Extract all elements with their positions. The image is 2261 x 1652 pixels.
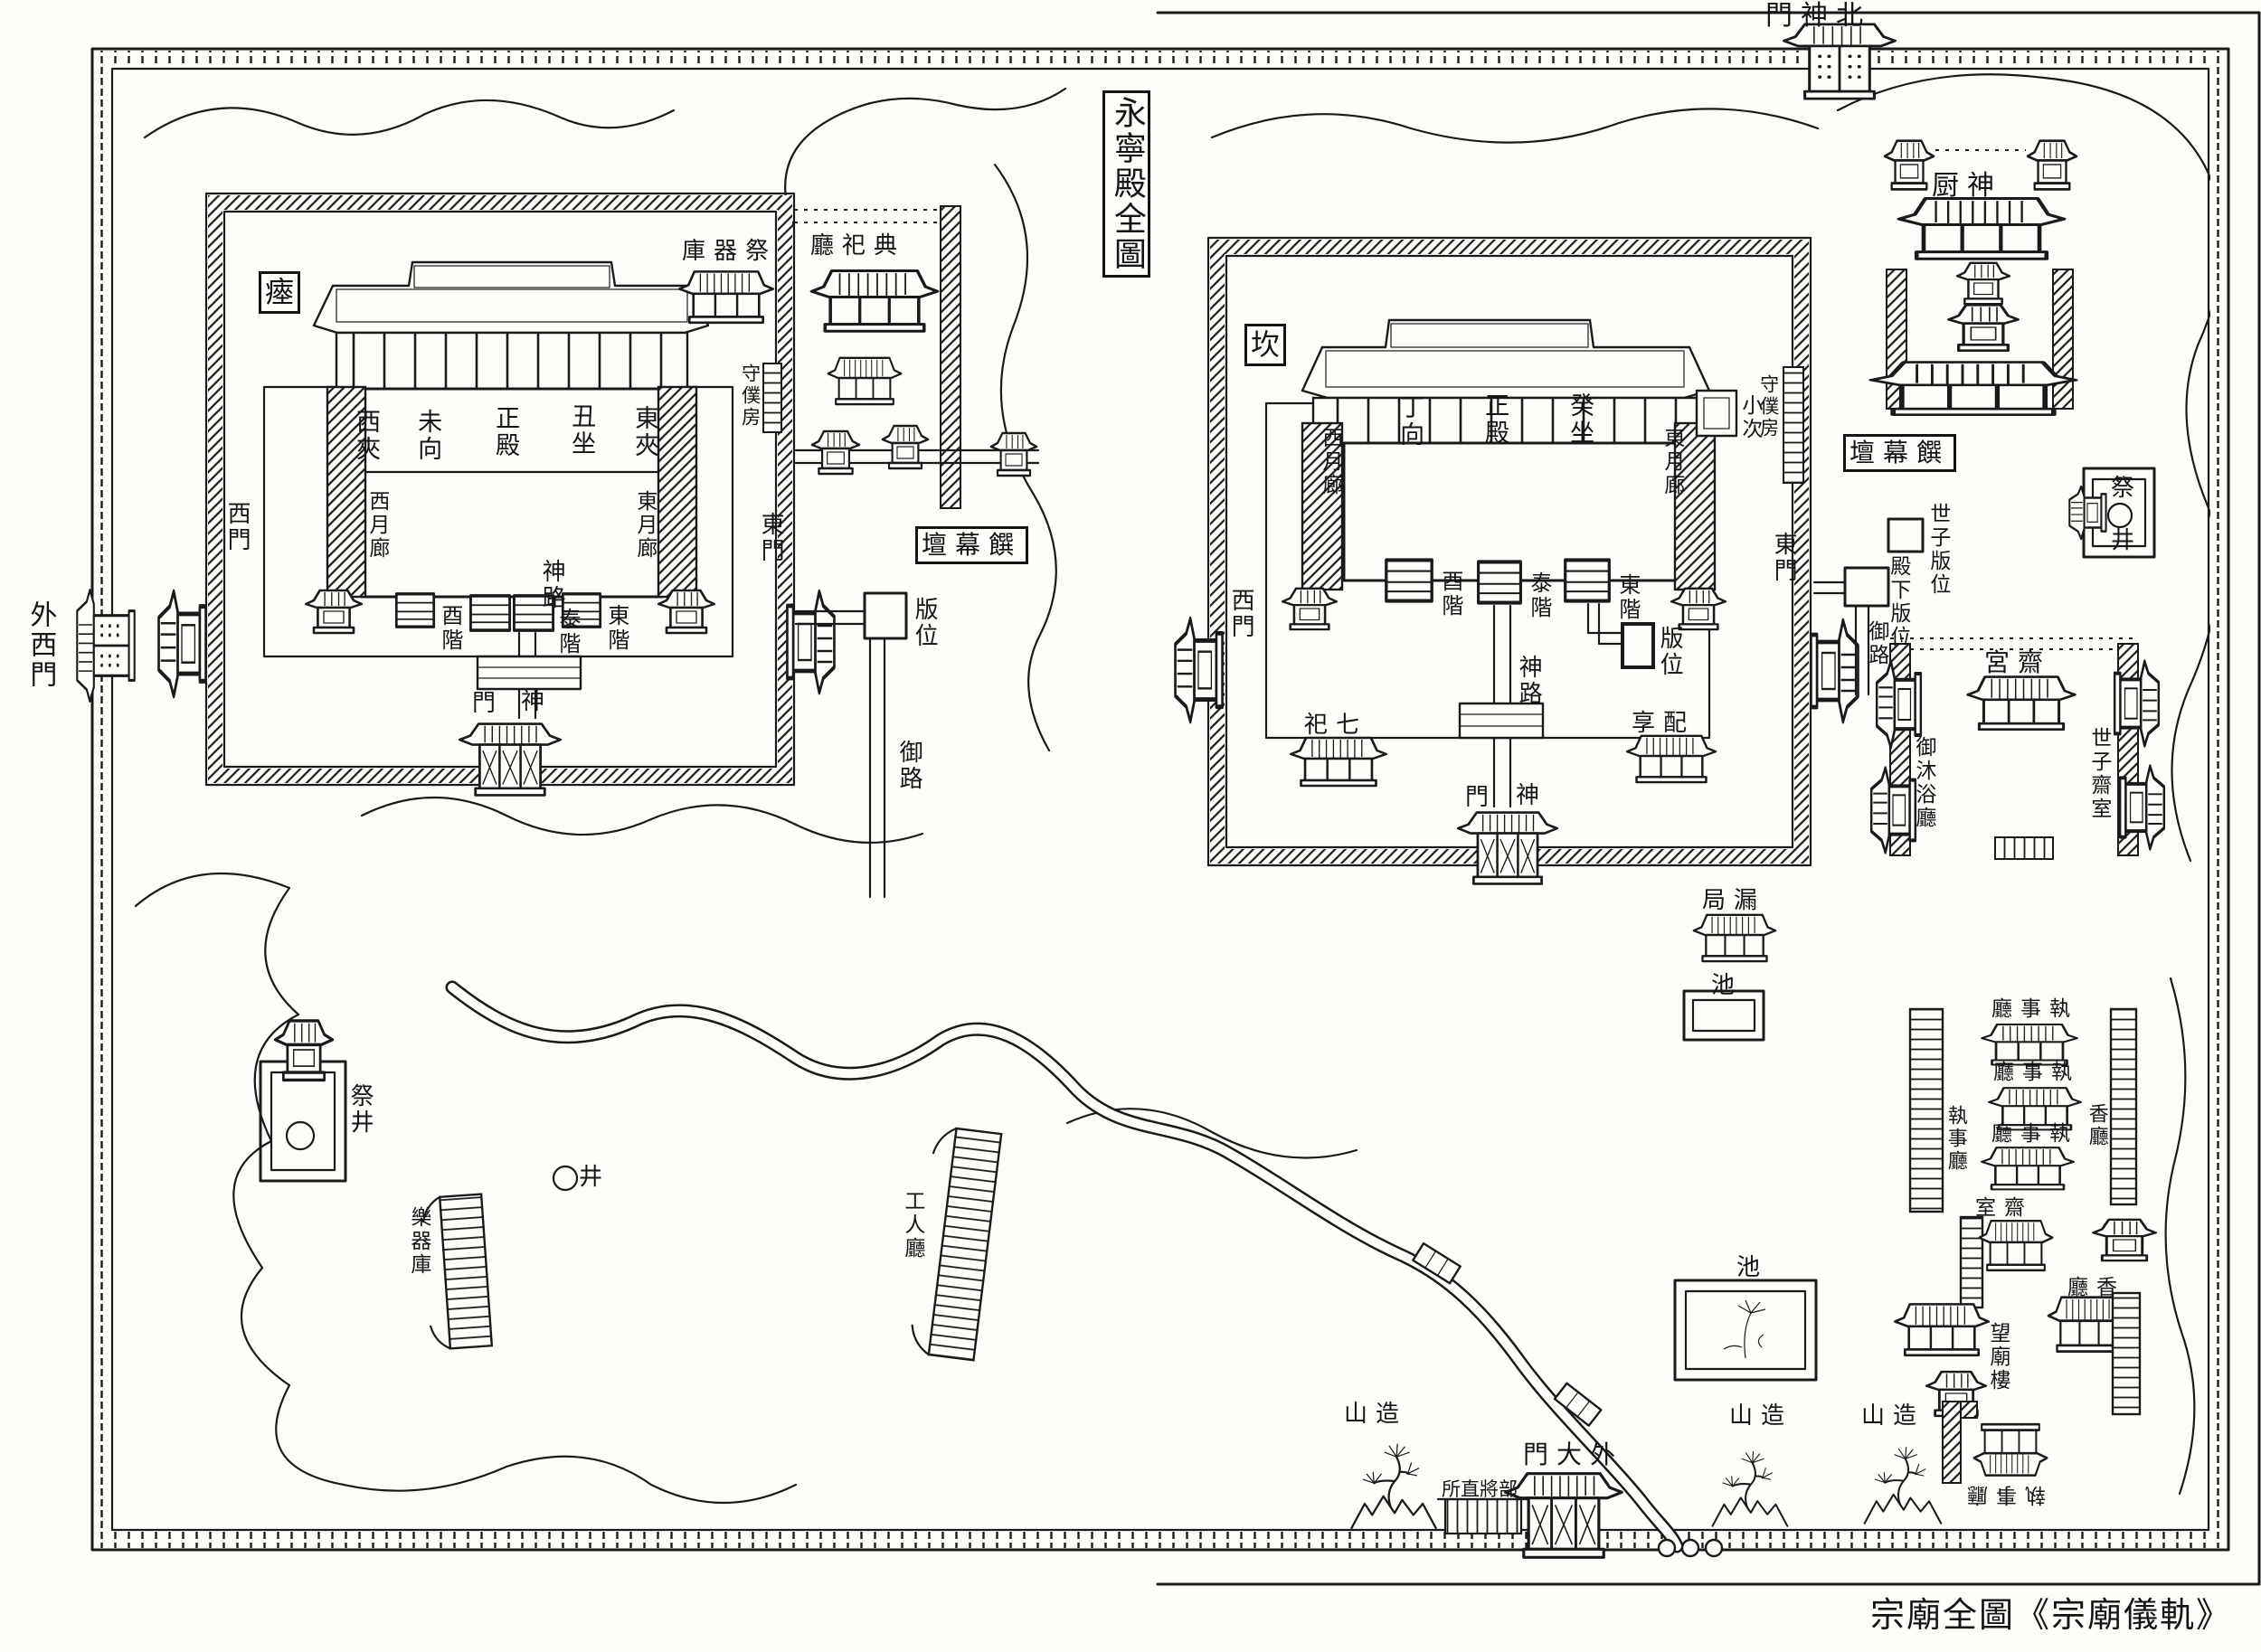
- label-instrument-store: 樂器庫: [407, 1206, 430, 1277]
- label-sacred-kitchen: 厨神: [1932, 172, 2002, 201]
- label-steward-hall-3: 廳事執: [1991, 1123, 2078, 1146]
- label-jj-merit-hall: 享配: [1632, 711, 1695, 736]
- label-jj-spirit-gate-right: 神: [1516, 783, 1539, 808]
- label-main-gate: 門大外: [1523, 1441, 1623, 1468]
- label-jj-spirit-road: 神路: [1516, 655, 1541, 707]
- label-jj-pit: 坎: [1244, 324, 1286, 366]
- pine-tree: [1351, 1444, 1435, 1528]
- label-jj-keeper-room: 守僕房: [1758, 374, 1779, 439]
- map-cartouche: 永寧殿全圖: [1102, 90, 1150, 278]
- label-ynj-sitting: 丑坐: [568, 403, 594, 458]
- label-ynj-spirit-road: 神路: [539, 559, 564, 611]
- label-ynj-facing: 未向: [414, 409, 440, 463]
- label-king-spot: 殿下版位: [1887, 555, 1909, 649]
- label-ynj-pit: 瘞: [259, 271, 300, 314]
- label-sw-sacrificial-well: 祭井: [347, 1083, 373, 1136]
- label-guard-post: 所直將部: [1442, 1479, 1518, 1500]
- label-abstinence-room: 室齋: [1975, 1197, 2033, 1220]
- label-sw-well: 井: [579, 1165, 602, 1190]
- label-jj-west-stair: 酉階: [1438, 570, 1462, 618]
- label-jj-seven-shrines: 祀七: [1304, 713, 1367, 738]
- label-steward-hall-west: 執事廳: [1944, 1105, 1966, 1173]
- label-ynj-grand-stair: 泰階: [555, 608, 579, 656]
- label-jj-tablet-spot: 版位: [1657, 626, 1682, 678]
- label-shrine-view-pavilion: 望廟樓: [1986, 1322, 2009, 1392]
- label-jj-sitting: 癸坐: [1566, 392, 1593, 447]
- label-jj-east-gate: 東門: [1771, 532, 1796, 584]
- label-ynj-keeper-room: 守僕房: [740, 363, 761, 429]
- label-jj-west-gate: 西門: [1228, 588, 1253, 640]
- label-ynj-east-stair: 東階: [604, 604, 628, 653]
- jongmyo-map-page: 永寧殿全圖 門神北 外西門 瘞 西夾 未向 正殿 丑坐 東夾 西月廊 東月廊 酉…: [0, 0, 2261, 1652]
- label-incense-hall: 廳香: [2067, 1277, 2125, 1299]
- label-mound-east: 山造: [1861, 1403, 1925, 1429]
- label-outer-west-gate: 外西門: [25, 600, 54, 690]
- label-ynj-west-gate: 西門: [224, 501, 250, 553]
- label-jj-offering-altar: 壇幕饌: [1843, 434, 1956, 472]
- label-jj-east-stair: 東階: [1615, 573, 1639, 622]
- label-jj-east-corridor: 東月廊: [1660, 427, 1683, 497]
- label-ynj-tablet-spot: 版位: [912, 597, 937, 649]
- label-ynj-royal-road: 御路: [896, 740, 922, 792]
- label-ynj-spirit-gate-right: 神: [521, 689, 544, 714]
- label-ynj-offering-altar: 壇幕饌: [915, 526, 1028, 564]
- label-pond-large: 池: [1736, 1255, 1760, 1280]
- label-ynj-ritual-office: 廳祀典: [810, 233, 905, 259]
- label-jj-west-corridor: 西月廊: [1319, 427, 1341, 497]
- label-crown-prince-chamber: 世子齋室: [2087, 727, 2110, 821]
- label-ynj-vessel-store: 庫器祭: [682, 239, 777, 264]
- label-royal-bath: 御沐浴廳: [1912, 736, 1935, 830]
- map-caption: 宗廟全圖《宗廟儀軌》: [1870, 1597, 2232, 1634]
- label-jj-grand-stair: 泰階: [1527, 571, 1550, 620]
- label-incense-hall-east: 香廳: [2086, 1103, 2107, 1148]
- drain-holes: [1659, 1540, 1722, 1556]
- label-musicians-hall: 工人廳: [901, 1190, 923, 1260]
- stream: [452, 987, 1722, 1556]
- label-steward-hall-2: 廳事執: [1993, 1062, 2080, 1084]
- label-jj-main-hall: 正殿: [1481, 392, 1508, 447]
- ponds: [1675, 915, 1816, 1380]
- label-mound-mid: 山造: [1729, 1403, 1793, 1429]
- guard-post-building: [1438, 1499, 1528, 1534]
- label-jj-facing: 丁向: [1396, 394, 1423, 448]
- label-east-well-bottom: 井: [2111, 528, 2134, 553]
- label-ynj-west-stair: 酉階: [438, 604, 461, 653]
- pine-tree: [1713, 1451, 1788, 1526]
- label-east-well-top: 祭: [2111, 476, 2134, 501]
- label-ynj-east-gate: 東門: [758, 512, 783, 564]
- label-clepsydra: 局漏: [1702, 888, 1765, 913]
- label-mound-west: 山造: [1344, 1402, 1407, 1427]
- label-steward-hall-south: 執事廳: [1959, 1483, 2046, 1506]
- label-ynj-west-corridor: 西月廊: [365, 490, 388, 561]
- label-ynj-east-bay: 東夾: [631, 405, 657, 459]
- label-jaegung: 宮齋: [1984, 649, 2051, 676]
- label-pond-small: 池: [1711, 973, 1735, 998]
- label-north-gate: 門神北: [1765, 2, 1871, 31]
- label-jj-royal-road: 御路: [1865, 620, 1887, 667]
- label-steward-hall-1: 廳事執: [1991, 998, 2078, 1021]
- pine-tree: [1865, 1447, 1942, 1524]
- label-ynj-west-bay: 西夾: [353, 409, 379, 463]
- label-crown-prince-spot: 世子版位: [1926, 503, 1949, 597]
- label-ynj-spirit-gate-left: 門: [472, 691, 496, 716]
- label-ynj-east-corridor: 東月廊: [633, 490, 656, 561]
- label-ynj-main-hall: 正殿: [492, 405, 518, 459]
- label-jj-spirit-gate-left: 門: [1465, 785, 1489, 810]
